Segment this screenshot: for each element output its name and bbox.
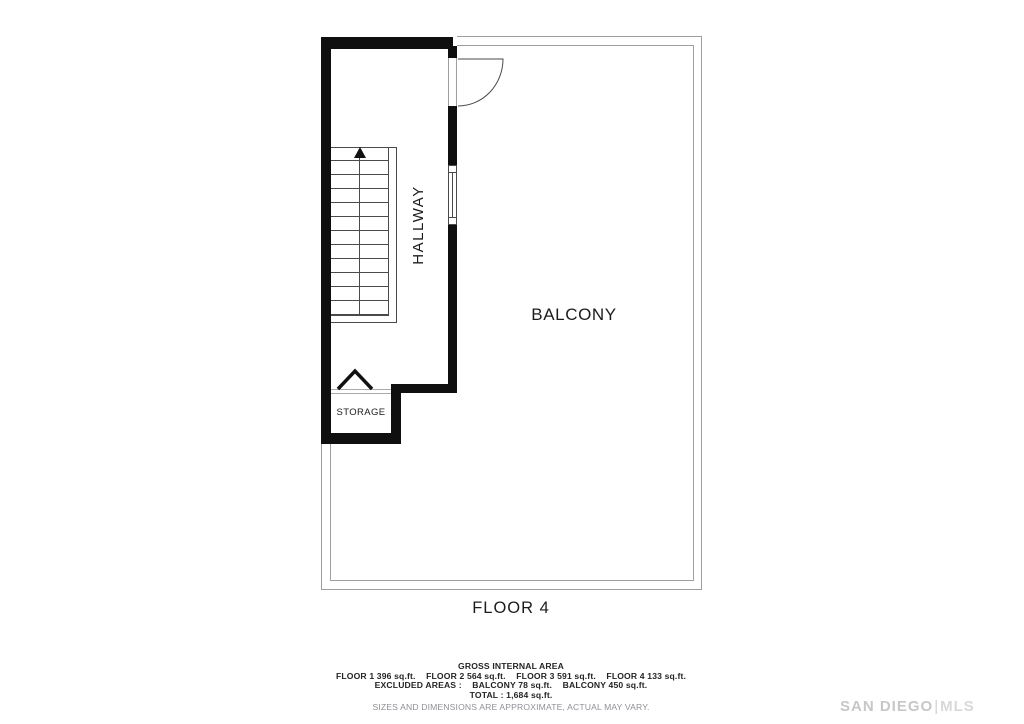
stairs-direction-line (359, 158, 360, 316)
balcony-label: BALCONY (494, 305, 654, 325)
stairs-treads (331, 147, 389, 316)
watermark-suffix: MLS (940, 698, 975, 715)
storage-wall-bottom (321, 433, 401, 444)
wall-right-lower (448, 225, 457, 393)
window-frame-line (449, 217, 456, 218)
floor-area-item: FLOOR 3 591 sq.ft. (516, 671, 596, 681)
storage-label: STORAGE (331, 407, 391, 418)
floor-area-item: FLOOR 1 396 sq.ft. (336, 671, 416, 681)
wall-left (321, 37, 331, 393)
total-label: TOTAL : (470, 690, 504, 700)
floor-plan-page: HALLWAY BALCONY STORAGE FLOOR 4 GROSS IN… (0, 0, 1024, 724)
hallway-label: HALLWAY (409, 165, 429, 285)
wall-right-upper (448, 46, 457, 58)
watermark-brand: SAN DIEGO (840, 698, 933, 715)
wall-top (321, 37, 453, 49)
disclaimer-text: SIZES AND DIMENSIONS ARE APPROXIMATE, AC… (161, 703, 861, 713)
floor-area-item: FLOOR 2 564 sq.ft. (426, 671, 506, 681)
window-glass-line (452, 173, 453, 217)
excluded-area-item: BALCONY 78 sq.ft. (472, 680, 552, 690)
door-opening (448, 58, 457, 106)
total-value: 1,684 sq.ft. (506, 690, 552, 700)
total-area-line: TOTAL : 1,684 sq.ft. (161, 691, 861, 701)
storage-door-icon (336, 368, 376, 392)
door-swing-icon (458, 58, 506, 108)
area-summary: GROSS INTERNAL AREA FLOOR 1 396 sq.ft. F… (161, 662, 861, 713)
stairs-up-arrow-icon (354, 147, 366, 158)
window-icon (448, 165, 457, 225)
floor-title: FLOOR 4 (411, 599, 611, 618)
sandiego-mls-watermark: SAN DIEGO|MLS (840, 698, 1012, 715)
wall-right-mid (448, 106, 457, 165)
excluded-areas-label: EXCLUDED AREAS : (375, 680, 462, 690)
floor-area-item: FLOOR 4 133 sq.ft. (606, 671, 686, 681)
excluded-area-item: BALCONY 450 sq.ft. (563, 680, 648, 690)
